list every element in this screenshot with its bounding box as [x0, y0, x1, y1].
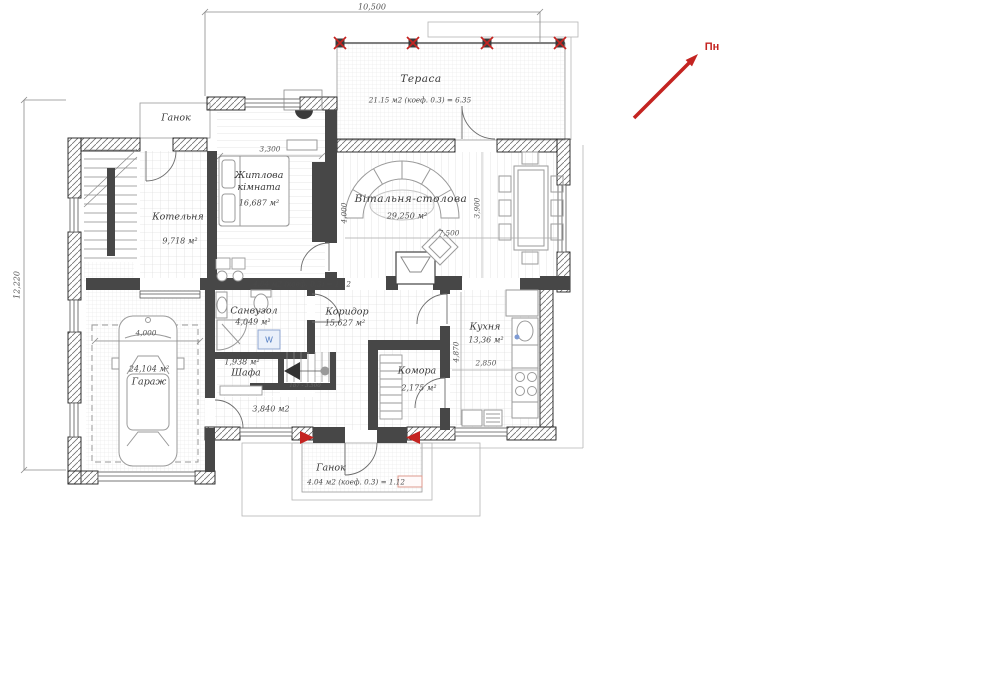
- staircase-main: [84, 149, 137, 258]
- floor-plan-canvas: 10,500 12,220 Тераса 21.15 м2 (коеф. 0.3…: [0, 0, 1000, 685]
- highlight-box: [398, 476, 422, 487]
- floor-plan-drawing: [0, 0, 1000, 685]
- north-arrow-icon: [634, 54, 698, 118]
